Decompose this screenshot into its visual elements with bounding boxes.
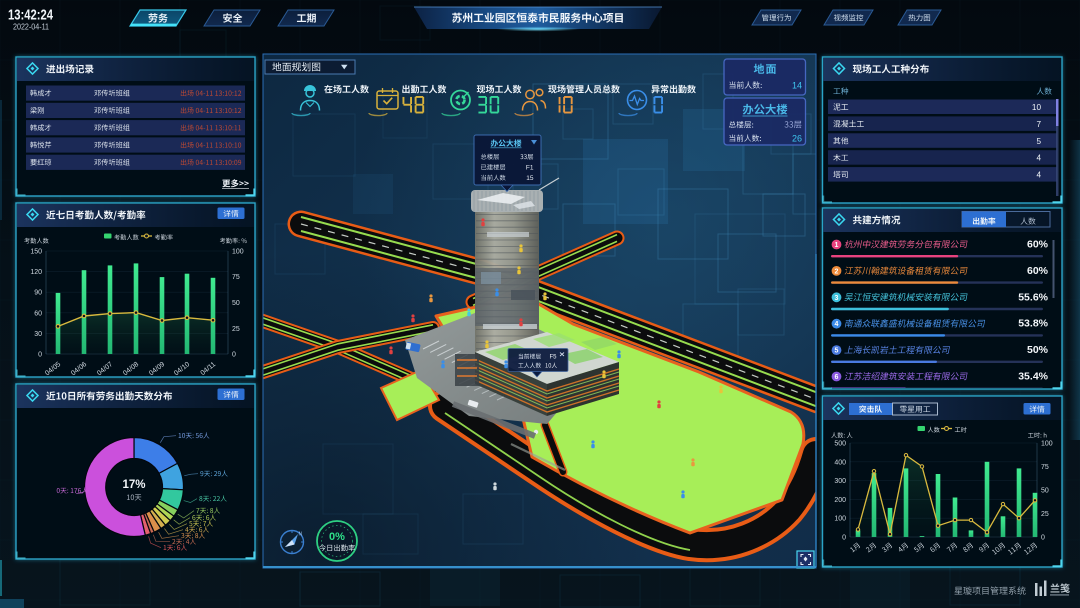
svg-text:500: 500 xyxy=(834,441,846,448)
svg-text:0: 0 xyxy=(38,352,42,359)
svg-text:400: 400 xyxy=(834,459,846,466)
svg-text:100: 100 xyxy=(834,516,846,523)
svg-text:2: 2 xyxy=(835,268,839,275)
svg-text:2022-04-11: 2022-04-11 xyxy=(13,23,49,32)
svg-text:1: 1 xyxy=(835,242,839,249)
svg-text:50%: 50% xyxy=(1027,344,1049,356)
svg-text:0%: 0% xyxy=(329,531,345,543)
svg-text:5: 5 xyxy=(835,348,839,355)
svg-text:N: N xyxy=(299,532,303,538)
svg-text:0: 0 xyxy=(232,352,236,359)
svg-text:150: 150 xyxy=(30,249,42,256)
svg-text:F5: F5 xyxy=(550,355,558,361)
svg-text:75: 75 xyxy=(232,274,240,281)
svg-text:55.6%: 55.6% xyxy=(1018,291,1048,303)
svg-text:0: 0 xyxy=(1041,535,1045,542)
svg-text:7: 7 xyxy=(1036,120,1041,129)
svg-text:15: 15 xyxy=(526,175,534,182)
svg-text:10: 10 xyxy=(1032,103,1042,112)
svg-text:100: 100 xyxy=(1041,441,1053,448)
svg-text:0: 0 xyxy=(842,535,846,542)
svg-text:25: 25 xyxy=(1041,511,1049,518)
svg-text:53.8%: 53.8% xyxy=(1018,318,1048,330)
svg-text:4: 4 xyxy=(1036,171,1041,180)
svg-text:50: 50 xyxy=(232,300,240,307)
svg-text:300: 300 xyxy=(834,478,846,485)
svg-text:25: 25 xyxy=(232,326,240,333)
svg-text:4: 4 xyxy=(835,321,839,328)
svg-text:30: 30 xyxy=(34,331,42,338)
svg-text:75: 75 xyxy=(1041,464,1049,471)
svg-text:5: 5 xyxy=(1036,137,1041,146)
svg-text:100: 100 xyxy=(232,249,244,256)
svg-text:120: 120 xyxy=(30,269,42,276)
svg-text:60: 60 xyxy=(34,310,42,317)
svg-text:F1: F1 xyxy=(526,165,534,172)
svg-text:90: 90 xyxy=(34,290,42,297)
svg-text:60%: 60% xyxy=(1027,265,1049,277)
svg-text:4: 4 xyxy=(1036,154,1041,163)
svg-text:60%: 60% xyxy=(1027,239,1049,251)
svg-text:26: 26 xyxy=(792,134,802,144)
svg-text:35.4%: 35.4% xyxy=(1018,371,1048,383)
svg-text:13:42:24: 13:42:24 xyxy=(8,8,53,24)
svg-text:17%: 17% xyxy=(122,479,145,491)
svg-text:200: 200 xyxy=(834,497,846,504)
svg-text:14: 14 xyxy=(792,81,802,91)
svg-text:3: 3 xyxy=(835,295,839,302)
svg-text:50: 50 xyxy=(1041,488,1049,495)
svg-text:6: 6 xyxy=(835,374,839,381)
